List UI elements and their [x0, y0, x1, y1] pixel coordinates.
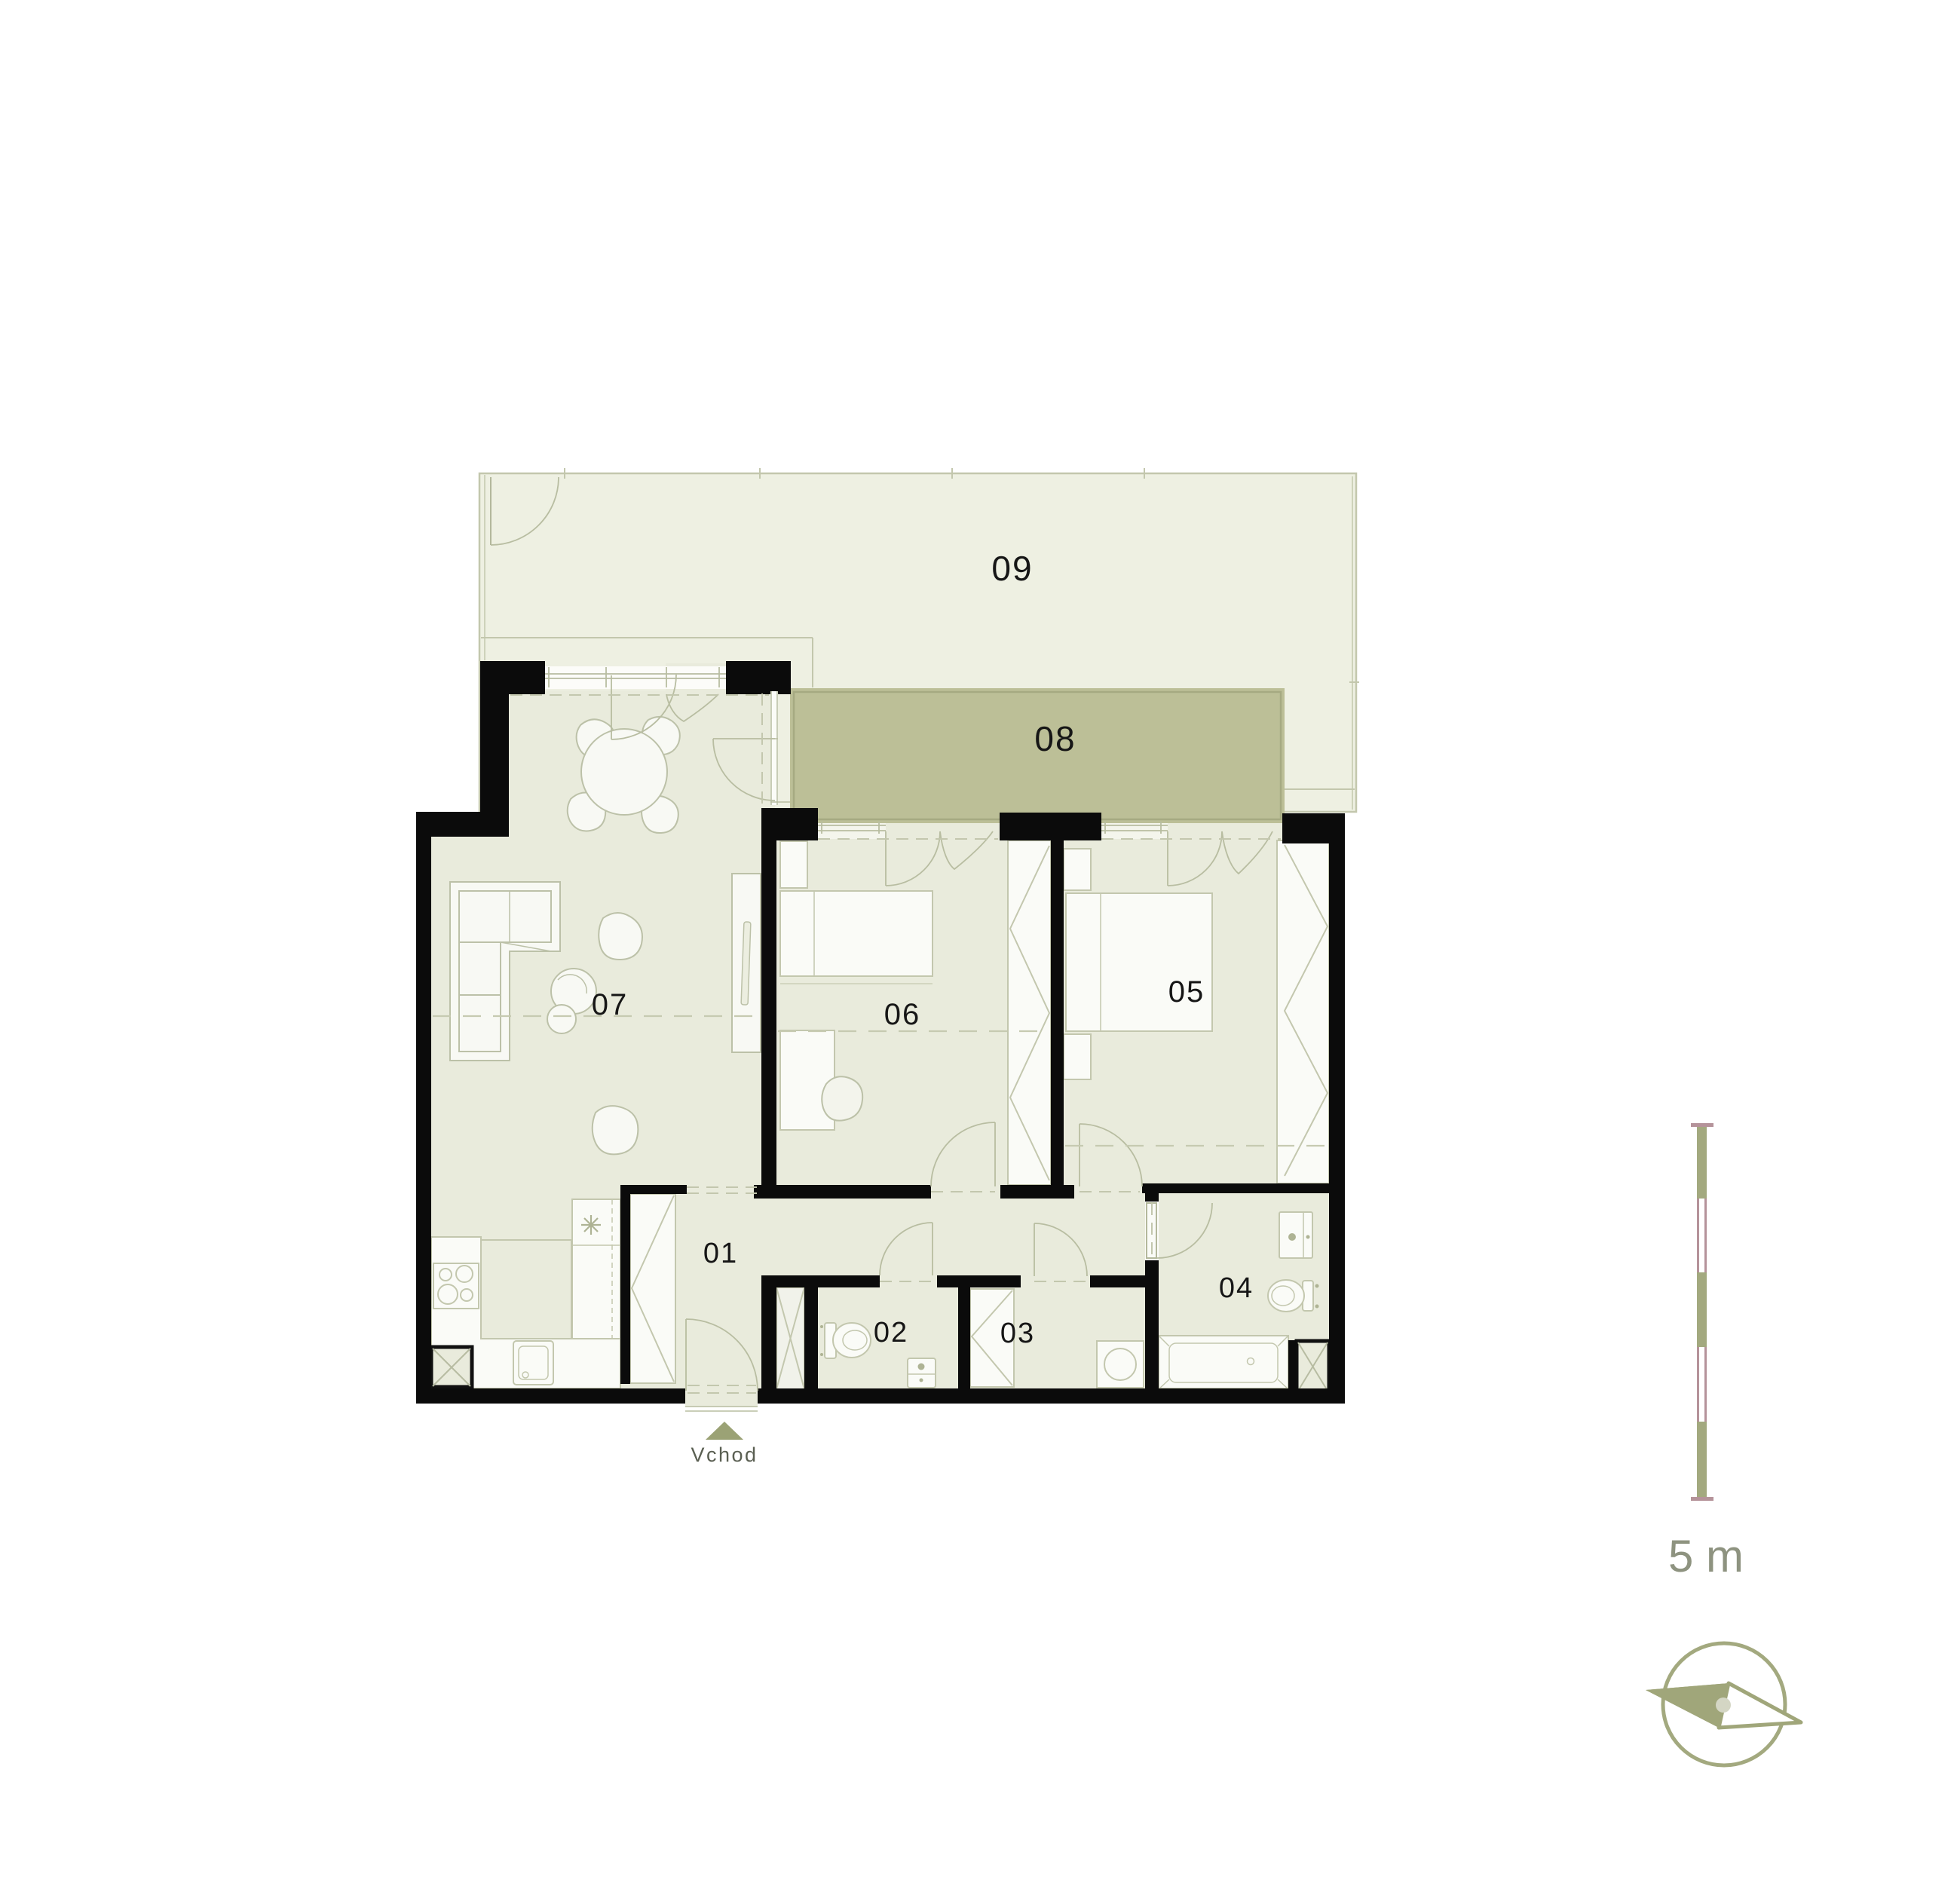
- svg-text:02: 02: [874, 1317, 908, 1349]
- svg-text:04: 04: [1219, 1272, 1254, 1304]
- svg-text:07: 07: [592, 988, 629, 1021]
- svg-text:06: 06: [884, 998, 921, 1031]
- svg-text:05: 05: [1168, 975, 1205, 1009]
- svg-text:5 m: 5 m: [1668, 1531, 1744, 1581]
- svg-text:09: 09: [991, 549, 1033, 588]
- svg-text:08: 08: [1034, 719, 1076, 758]
- svg-text:03: 03: [1000, 1318, 1035, 1349]
- svg-text:01: 01: [703, 1238, 738, 1269]
- svg-text:Vchod: Vchod: [691, 1443, 758, 1466]
